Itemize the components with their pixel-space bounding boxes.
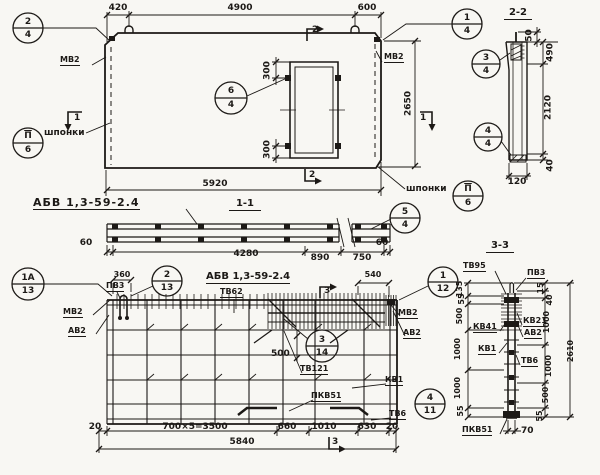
callout-3-14-bottom: 14 bbox=[306, 349, 338, 358]
section-2-2-dim-120: 120 bbox=[502, 178, 532, 187]
section-1-1-dim-4280: 4280 bbox=[226, 250, 266, 259]
section-3-3-label-av2: АВ2 bbox=[524, 329, 542, 339]
callout-5-4-top: 5 bbox=[393, 208, 417, 217]
plan-label-mv2-right: МВ2 bbox=[384, 53, 404, 63]
section-3-3-dim-1000a-left: 1000 bbox=[454, 332, 462, 366]
callout-4-4-bottom: 4 bbox=[476, 140, 500, 149]
section-2-2-dim-40: 40 bbox=[547, 151, 556, 181]
plan-section-mark-2-bottom: 2 bbox=[309, 171, 315, 180]
callout-6-4-bottom: 4 bbox=[219, 101, 243, 110]
rebar-dim-660: 660 bbox=[270, 423, 304, 432]
rebar-label-av2-left: АВ2 bbox=[68, 327, 86, 337]
section-3-3-label-tv95: ТВ95 bbox=[463, 262, 486, 272]
callout-1-4-bottom: 4 bbox=[455, 27, 479, 36]
section-1-1-linework bbox=[104, 203, 420, 256]
callout-keys-left-top: П bbox=[16, 132, 40, 141]
section-3-3-dim-55-bottom-left: 55 bbox=[457, 398, 465, 424]
rebar-label-mv2-right: МВ2 bbox=[398, 309, 418, 319]
rebar-label-tv121: ТВ121 bbox=[300, 365, 328, 375]
section-3-3-dim-1000b-right: 1000 bbox=[545, 349, 553, 383]
plan-label-mv2-left: МВ2 bbox=[60, 56, 80, 66]
rebar-dim-20-left: 20 bbox=[86, 423, 104, 432]
plan-dim-300-bottom: 300 bbox=[264, 135, 273, 165]
plan-dim-5920: 5920 bbox=[197, 180, 233, 189]
section-3-3-dim-70: 70 bbox=[521, 427, 534, 436]
lifting-loop-icon bbox=[125, 26, 359, 33]
plan-label-shponki-left: шпонки bbox=[44, 129, 85, 138]
rebar-plan-subtitle-tv62: ТВ62 bbox=[220, 288, 243, 298]
callout-1a-13-bottom: 13 bbox=[12, 287, 44, 296]
callout-4-11-bottom: 11 bbox=[418, 407, 442, 416]
rebar-label-kv1: КВ1 bbox=[385, 376, 403, 386]
rebar-dim-3500: 700×5=3500 bbox=[150, 423, 240, 432]
callout-1-12-top: 1 bbox=[431, 272, 455, 281]
section-3-3-dim-500-left: 500 bbox=[456, 301, 464, 331]
plan-section-mark-1-right: 1 bbox=[420, 114, 426, 123]
plan-dim-420: 420 bbox=[103, 4, 133, 13]
rebar-dim-5840: 5840 bbox=[222, 438, 262, 447]
rebar-dim-360: 360 bbox=[104, 271, 140, 279]
section-2-2-dim-2120: 2120 bbox=[545, 90, 554, 126]
rebar-label-tv6: ТВ6 bbox=[389, 410, 406, 420]
rebar-label-pv3: ПВ3 bbox=[106, 282, 124, 292]
drawing-sheet: 2 4 1 4 6 4 П 6 П 6 420 4900 600 5920 26… bbox=[0, 0, 600, 475]
rebar-plan-title: АБВ 1,3-59-2.4 bbox=[206, 272, 290, 284]
callout-2-4-top: 2 bbox=[16, 18, 40, 27]
section-3-3-label-tv6: ТВ6 bbox=[521, 357, 538, 367]
section-1-1-dim-750: 750 bbox=[345, 254, 379, 263]
callout-2-13-bottom: 13 bbox=[155, 284, 179, 293]
callout-4-11-top: 4 bbox=[418, 394, 442, 403]
callout-1-12-bottom: 12 bbox=[431, 285, 455, 294]
rebar-dim-20-right: 20 bbox=[383, 423, 401, 432]
rebar-dim-540: 540 bbox=[355, 271, 391, 279]
rebar-label-av2-right: АВ2 bbox=[403, 329, 421, 339]
rebar-label-pkv51: ПКВ51 bbox=[311, 392, 341, 402]
section-2-2-title: 2-2 bbox=[504, 8, 532, 20]
rebar-dim-630: 630 bbox=[350, 423, 384, 432]
plan-dim-2650: 2650 bbox=[405, 84, 414, 124]
callout-2-13-top: 2 bbox=[155, 271, 179, 280]
rebar-dim-500: 500 bbox=[271, 350, 290, 359]
callout-1-4-top: 1 bbox=[455, 14, 479, 23]
plan-dim-300-top: 300 bbox=[264, 56, 273, 86]
section-3-3-label-kv41: КВ41 bbox=[473, 323, 497, 333]
section-3-3-title: 3-3 bbox=[486, 241, 514, 253]
section-1-1-dim-60-left: 60 bbox=[76, 239, 96, 248]
callout-4-4-top: 4 bbox=[476, 127, 500, 136]
section-3-3-dim-55-right: 55 bbox=[536, 403, 544, 429]
callout-3-4-top: 3 bbox=[474, 54, 498, 63]
callout-1a-13-top: 1А bbox=[12, 274, 44, 283]
section-1-1-dim-890: 890 bbox=[303, 254, 337, 263]
section-1-1-dim-60-right: 60 bbox=[372, 239, 392, 248]
section-3-3-dim-2610: 2610 bbox=[567, 332, 575, 370]
plan-section-mark-2-top: 2 bbox=[312, 26, 318, 35]
callout-keys-right-bottom: 6 bbox=[456, 199, 480, 208]
section-3-3-dim-15: 15 bbox=[537, 275, 545, 301]
callout-3-4-bottom: 4 bbox=[474, 67, 498, 76]
plan-section-mark-1-left: 1 bbox=[74, 114, 80, 123]
section-3-3-dim-1000a-right: 1000 bbox=[543, 305, 551, 339]
plan-dim-600: 600 bbox=[352, 4, 382, 13]
callout-2-4-bottom: 4 bbox=[16, 31, 40, 40]
callout-6-4-top: 6 bbox=[219, 87, 243, 96]
section-3-3-label-kv1: КВ1 bbox=[478, 345, 496, 355]
rebar-section-mark-3-top: 3 bbox=[324, 287, 330, 296]
callout-3-14-top: 3 bbox=[306, 336, 338, 345]
callout-keys-right-top: П bbox=[456, 185, 480, 194]
section-3-3-label-pkv51: ПКВ51 bbox=[462, 426, 492, 436]
section-1-1-title: 1-1 bbox=[229, 199, 261, 211]
plan-dim-4900: 4900 bbox=[220, 4, 260, 13]
section-2-2-dim-490: 490 bbox=[547, 38, 556, 68]
callout-keys-left-bottom: 6 bbox=[16, 146, 40, 155]
rebar-label-mv2-left: МВ2 bbox=[63, 308, 83, 318]
callout-5-4-bottom: 4 bbox=[393, 221, 417, 230]
rebar-section-mark-3-bottom: 3 bbox=[332, 438, 338, 447]
section-1-1-label: АБВ 1,3-59-2.4 bbox=[33, 197, 140, 210]
section-2-2-dim-50: 50 bbox=[526, 21, 535, 51]
plan-label-shponki-right: шпонки bbox=[406, 185, 447, 194]
rebar-dim-1010: 1010 bbox=[305, 423, 343, 432]
